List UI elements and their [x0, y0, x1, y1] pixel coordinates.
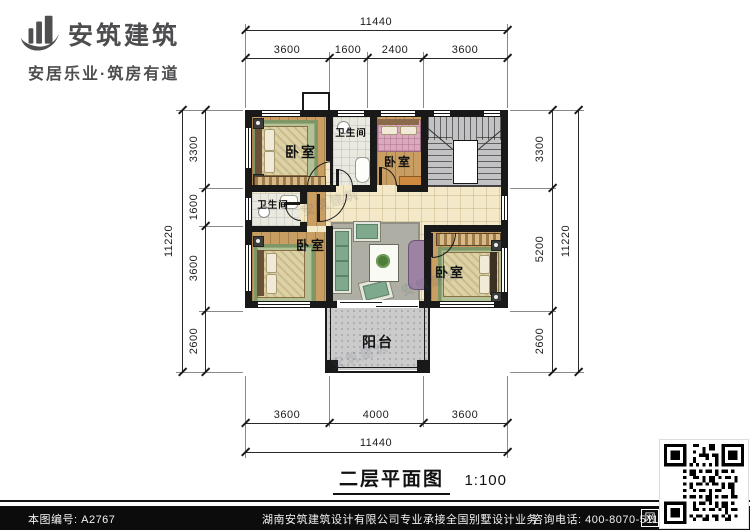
- toilet: [355, 157, 370, 183]
- dim-label: 3600: [188, 248, 200, 288]
- caption-title: 二层平面图: [333, 469, 450, 495]
- service-text: 专业承接全国别墅设计业务: [400, 511, 538, 527]
- dim-label: 1600: [188, 187, 200, 227]
- extension-line: [176, 110, 243, 111]
- dim-label: 3300: [188, 129, 200, 169]
- room-label-bathroom-middle-left: 卫生间: [249, 197, 297, 211]
- wall: [424, 225, 508, 232]
- room-label-bathroom-top: 卫生间: [327, 125, 375, 139]
- balcony-column: [417, 360, 430, 373]
- room-label-bedroom-top-left: 卧室: [271, 142, 331, 162]
- bed: [257, 250, 305, 298]
- dim-label-top-overall: 11440: [346, 16, 406, 28]
- dim-label: 2400: [375, 44, 415, 56]
- dim-line: [578, 110, 579, 372]
- window: [258, 301, 310, 308]
- dim-label: 2600: [534, 321, 546, 361]
- drawing-number: 本图编号: A2767: [28, 511, 115, 527]
- dim-label-left-overall: 11220: [163, 211, 175, 271]
- window: [381, 110, 415, 117]
- dim-label: 3600: [445, 409, 485, 421]
- room-label-bedroom-top-middle: 卧室: [373, 153, 423, 170]
- door-leaf: [330, 161, 333, 187]
- nightstand: [253, 118, 264, 129]
- dim-label: 3600: [445, 44, 485, 56]
- window: [245, 245, 252, 291]
- flue-shaft: [302, 92, 330, 110]
- extension-line: [245, 376, 246, 458]
- window: [484, 110, 500, 117]
- plant: [376, 254, 390, 268]
- window: [440, 301, 494, 308]
- room-label-bedroom-bottom-left: 卧室: [281, 235, 341, 254]
- extension-line: [176, 372, 243, 373]
- stair-edge: [428, 185, 501, 187]
- bed-headboard: [255, 126, 262, 174]
- extension-line: [510, 110, 584, 111]
- window: [245, 128, 252, 168]
- dim-line: [205, 110, 206, 372]
- phone-text: 咨询电话: 400-8070-511: [532, 511, 659, 527]
- door-leaf: [336, 169, 339, 186]
- dim-label: 5200: [534, 229, 546, 269]
- caption-scale: 1:100: [464, 472, 507, 489]
- wall: [421, 110, 428, 192]
- bed-headboard: [490, 252, 497, 295]
- dim-label: 1600: [328, 44, 368, 56]
- window: [338, 110, 364, 117]
- extension-line: [367, 52, 368, 108]
- wall: [397, 185, 428, 192]
- window: [501, 196, 508, 220]
- stair-void: [453, 140, 478, 184]
- building-logo-icon: [18, 12, 64, 56]
- nightstand: [253, 236, 264, 247]
- extension-line: [510, 372, 584, 373]
- window: [501, 248, 508, 292]
- page: 安筑建筑 安居乐业·筑房有道: [0, 0, 750, 530]
- dim-line: [245, 58, 508, 59]
- dim-line: [245, 30, 508, 31]
- brand-logo: 安筑建筑 安居乐业·筑房有道: [18, 12, 180, 84]
- dim-label: 3300: [534, 129, 546, 169]
- footer-rule: [0, 500, 750, 502]
- dim-label: 3600: [267, 44, 307, 56]
- qr-code: [659, 439, 749, 529]
- window: [262, 110, 300, 117]
- dim-line: [182, 110, 183, 372]
- wall: [370, 110, 377, 186]
- caption: 二层平面图 1:100: [280, 464, 560, 491]
- extension-line: [245, 24, 246, 108]
- web-mark: 网: [641, 509, 659, 527]
- extension-line: [507, 376, 508, 458]
- dim-label: 3600: [267, 409, 307, 421]
- wall: [245, 226, 307, 232]
- bed-headboard: [257, 250, 264, 296]
- extension-line: [507, 24, 508, 108]
- brand-name: 安筑建筑: [68, 16, 180, 52]
- dim-line: [245, 423, 508, 424]
- door-leaf: [431, 233, 434, 257]
- dim-line: [552, 110, 553, 372]
- bed-headboard: [377, 119, 419, 125]
- dim-label: 2600: [188, 321, 200, 361]
- staircase: [428, 117, 501, 186]
- company-name: 湖南安筑建筑设计有限公司: [262, 511, 400, 527]
- extension-line: [423, 52, 424, 108]
- window: [434, 110, 450, 117]
- dim-label-right-overall: 11220: [560, 211, 572, 271]
- dim-label-bottom-overall: 11440: [346, 437, 406, 449]
- footer-bar: 本图编号: A2767 湖南安筑建筑设计有限公司 专业承接全国别墅设计业务 咨询…: [0, 506, 750, 530]
- dim-line: [245, 452, 508, 453]
- brand-tagline: 安居乐业·筑房有道: [28, 60, 180, 84]
- dim-label: 4000: [356, 409, 396, 421]
